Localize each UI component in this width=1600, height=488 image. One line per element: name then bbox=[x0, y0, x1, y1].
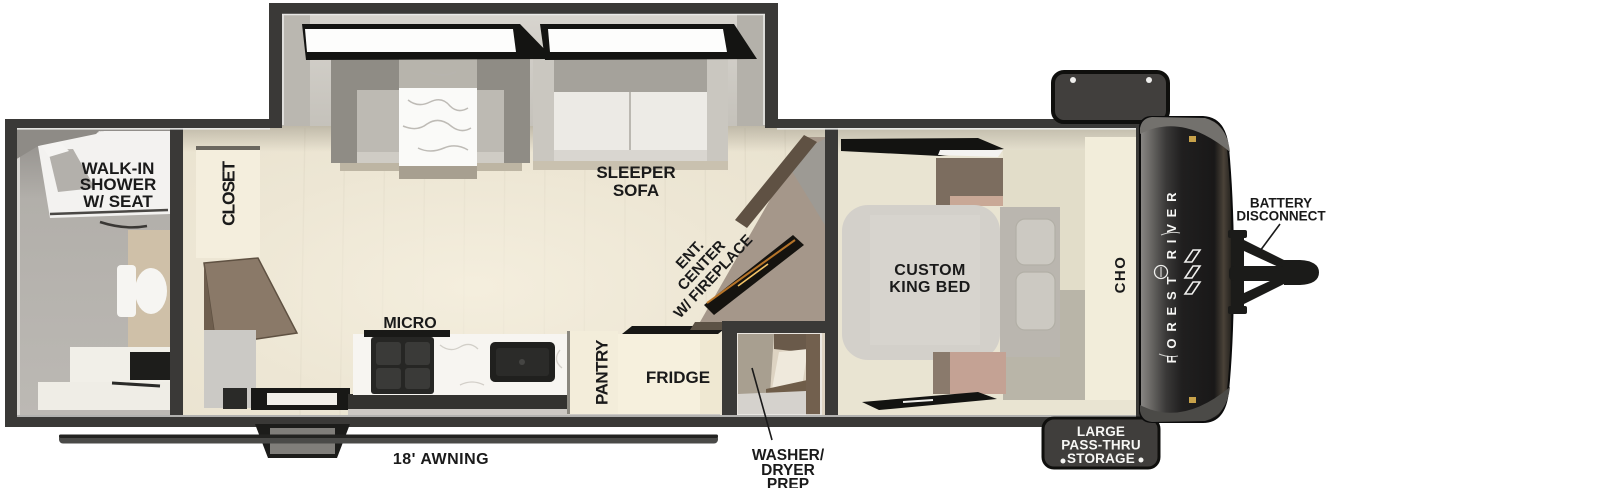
svg-text:PANTRY: PANTRY bbox=[593, 339, 612, 405]
svg-text:STORAGE: STORAGE bbox=[1067, 451, 1135, 466]
svg-text:CLOSET: CLOSET bbox=[219, 161, 239, 226]
svg-text:FOREST RIVER: FOREST RIVER bbox=[1164, 186, 1179, 364]
svg-text:DISCONNECT: DISCONNECT bbox=[1236, 209, 1326, 224]
svg-text:PREP: PREP bbox=[767, 476, 809, 488]
svg-text:KING BED: KING BED bbox=[889, 279, 970, 296]
svg-text:18' AWNING: 18' AWNING bbox=[393, 451, 489, 468]
svg-text:W/ SEAT: W/ SEAT bbox=[83, 192, 153, 211]
svg-text:CHO: CHO bbox=[1112, 256, 1129, 294]
svg-text:MICRO: MICRO bbox=[383, 315, 436, 332]
svg-text:CUSTOM: CUSTOM bbox=[894, 262, 965, 279]
svg-text:SLEEPER: SLEEPER bbox=[596, 163, 675, 182]
svg-text:SOFA: SOFA bbox=[613, 181, 659, 200]
svg-text:FRIDGE: FRIDGE bbox=[646, 368, 710, 387]
